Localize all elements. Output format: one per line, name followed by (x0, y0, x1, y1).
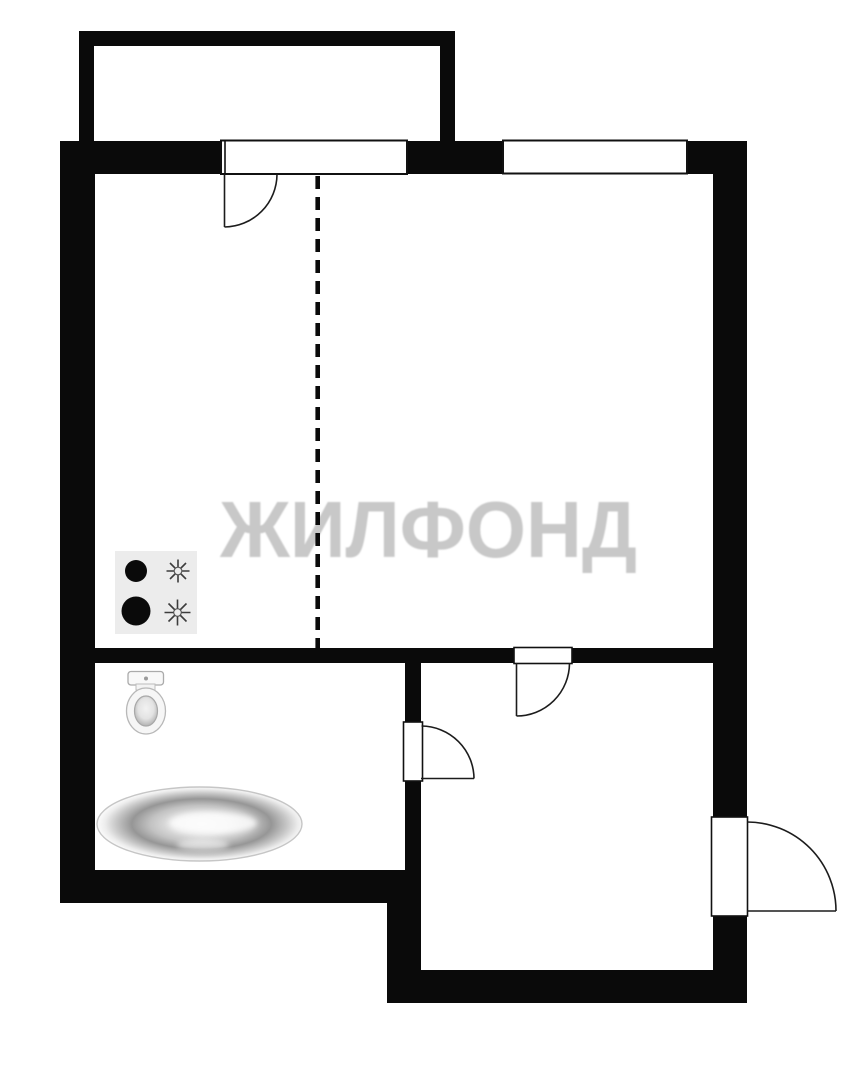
svg-text:ЖИЛФОНД: ЖИЛФОНД (219, 485, 637, 574)
